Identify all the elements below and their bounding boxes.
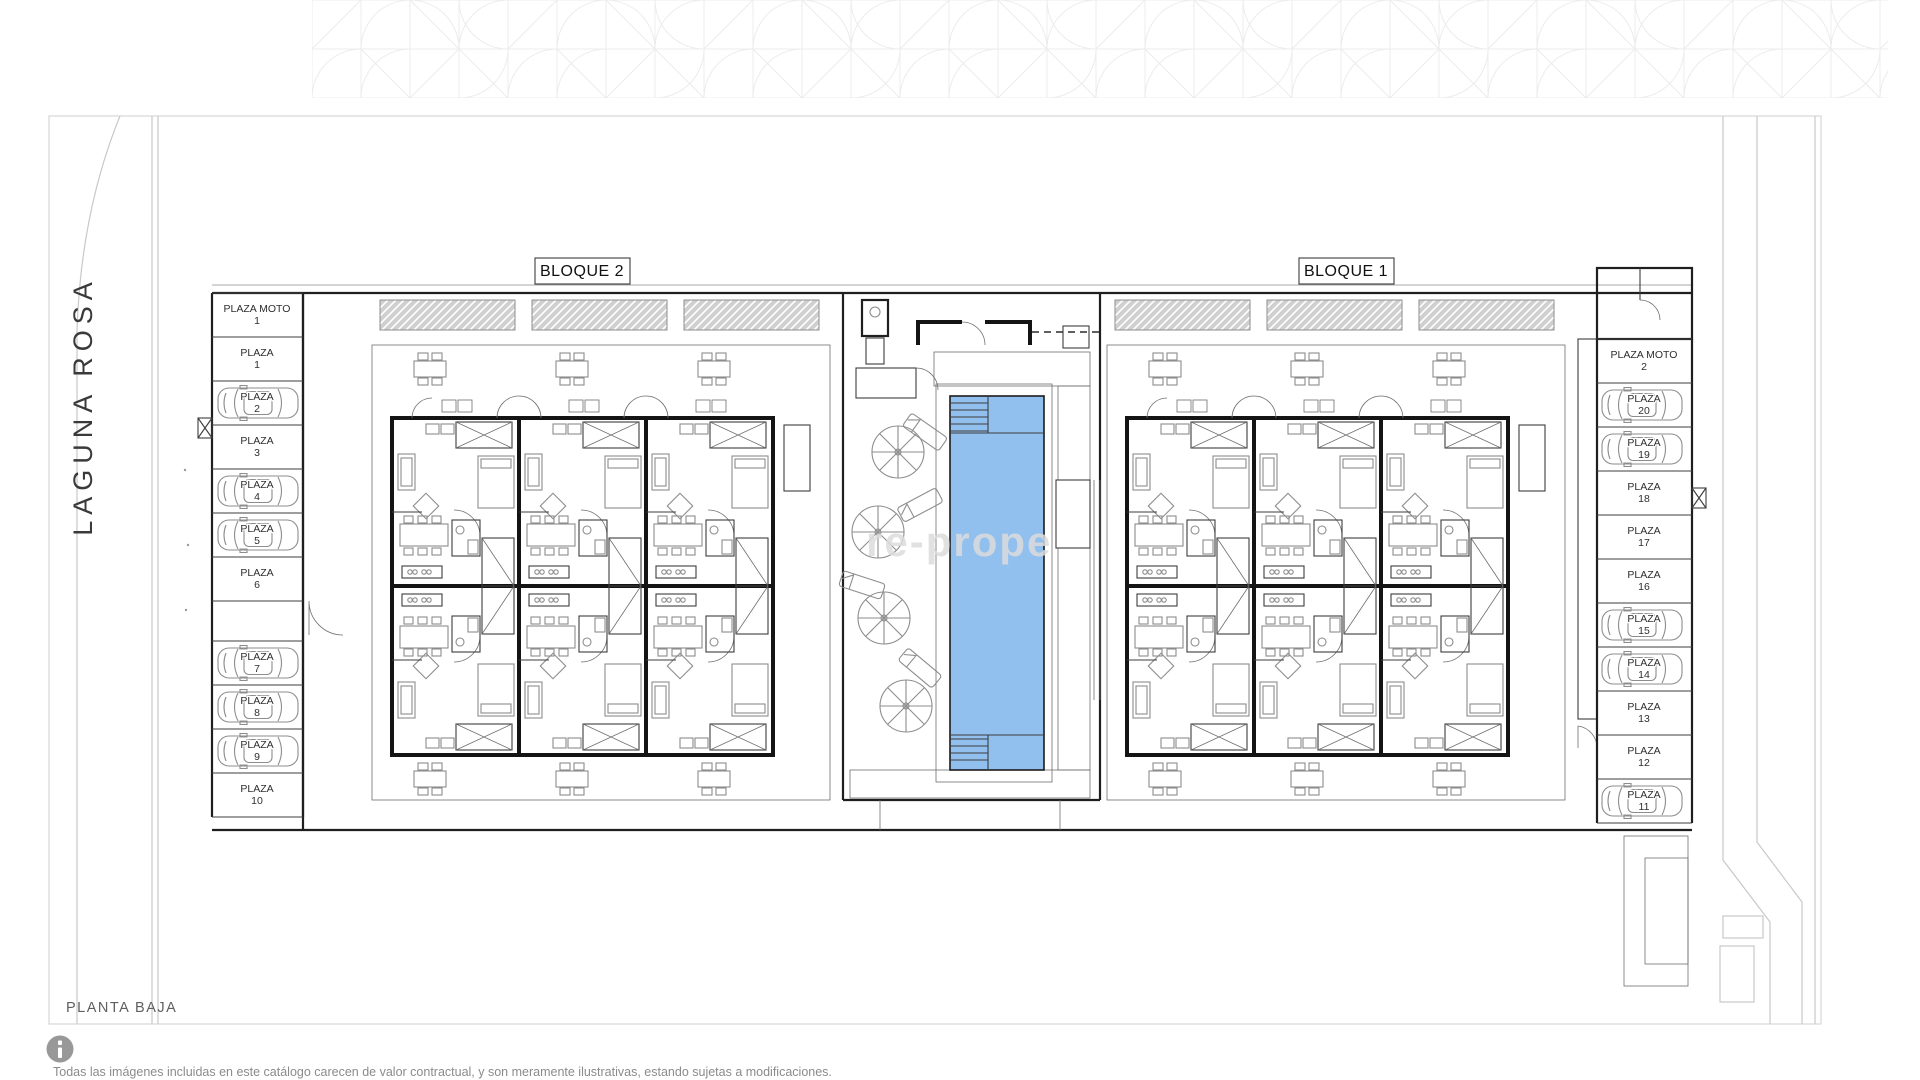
parking-stall: PLAZA1 [240,347,273,371]
walkway-bottom-right [1624,836,1688,986]
parking-stall: PLAZA10 [240,783,273,807]
parking-stall: PLAZA3 [240,435,273,459]
building-block-1 [1107,300,1565,800]
svg-text:PLAZA5: PLAZA5 [240,523,273,547]
parking-stall: PLAZA13 [1627,701,1660,725]
decorative-pattern-band [312,0,1888,98]
parking-stall: PLAZA17 [1627,525,1660,549]
parking-stall: PLAZA11 [1602,784,1682,819]
parking-stall: PLAZA14 [1602,652,1682,687]
svg-text:PLAZA12: PLAZA12 [1627,745,1660,769]
svg-text:PLAZA1: PLAZA1 [240,347,273,371]
street-right [1720,116,1815,1024]
block-1-title: BLOQUE 1 [1299,258,1394,284]
parking-stall: PLAZA2 [218,386,298,421]
svg-text:PLAZA MOTO2: PLAZA MOTO2 [1611,349,1678,373]
parking-column-left: PLAZA MOTO1 PLAZA1 PLAZA2 PLAZA3 PLAZA4 … [198,293,343,817]
block-2-title: BLOQUE 2 [535,258,630,284]
info-icon[interactable] [47,1036,74,1063]
floor-plan-page: LAGUNA ROSA BLOQUE 2 BLOQUE 1 [0,0,1920,1080]
svg-text:PLAZA8: PLAZA8 [240,695,273,719]
svg-text:PLAZA4: PLAZA4 [240,479,273,503]
swimming-pool [936,384,1052,782]
parking-stall: PLAZA6 [240,567,273,591]
parking-stall: PLAZA MOTO2 [1611,349,1678,373]
sunbathing-area [839,413,948,732]
site-plan-drawing: LAGUNA ROSA BLOQUE 2 BLOQUE 1 [0,0,1920,1080]
parking-stall: PLAZA5 [218,518,298,553]
parking-column-right: PLAZA MOTO2 PLAZA20 PLAZA19 PLAZA18 PLAZ… [1578,268,1706,823]
street-name-label: LAGUNA ROSA [68,276,98,536]
parking-stall: PLAZA16 [1627,569,1660,593]
parking-stall: PLAZA9 [218,734,298,769]
plan-border [49,116,1821,1024]
svg-text:PLAZA2: PLAZA2 [240,391,273,415]
parking-stall: PLAZA20 [1602,388,1682,423]
svg-text:PLAZA9: PLAZA9 [240,739,273,763]
parking-stall: PLAZA MOTO1 [224,303,291,327]
svg-text:PLAZA6: PLAZA6 [240,567,273,591]
parking-stall: PLAZA15 [1602,608,1682,643]
svg-text:PLAZA MOTO1: PLAZA MOTO1 [224,303,291,327]
parking-stall: PLAZA12 [1627,745,1660,769]
disclaimer-text: Todas las imágenes incluidas en este cat… [53,1065,832,1079]
parking-stall: PLAZA19 [1602,432,1682,467]
svg-text:PLAZA10: PLAZA10 [240,783,273,807]
street-laguna-rosa: LAGUNA ROSA [68,116,189,1024]
plan-level-label: PLANTA BAJA [66,1000,177,1016]
svg-text:PLAZA7: PLAZA7 [240,651,273,675]
block-1-label: BLOQUE 1 [1304,263,1388,280]
svg-text:PLAZA3: PLAZA3 [240,435,273,459]
parking-stall: PLAZA8 [218,690,298,725]
block-2-label: BLOQUE 2 [540,263,624,280]
parking-stall: PLAZA7 [218,646,298,681]
svg-text:PLAZA16: PLAZA16 [1627,569,1660,593]
watermark: re-prope [866,518,1052,565]
svg-text:PLAZA13: PLAZA13 [1627,701,1660,725]
parking-stall: PLAZA18 [1627,481,1660,505]
svg-text:PLAZA17: PLAZA17 [1627,525,1660,549]
svg-text:PLAZA18: PLAZA18 [1627,481,1660,505]
building-block-2 [372,300,830,800]
parking-stall: PLAZA4 [218,474,298,509]
